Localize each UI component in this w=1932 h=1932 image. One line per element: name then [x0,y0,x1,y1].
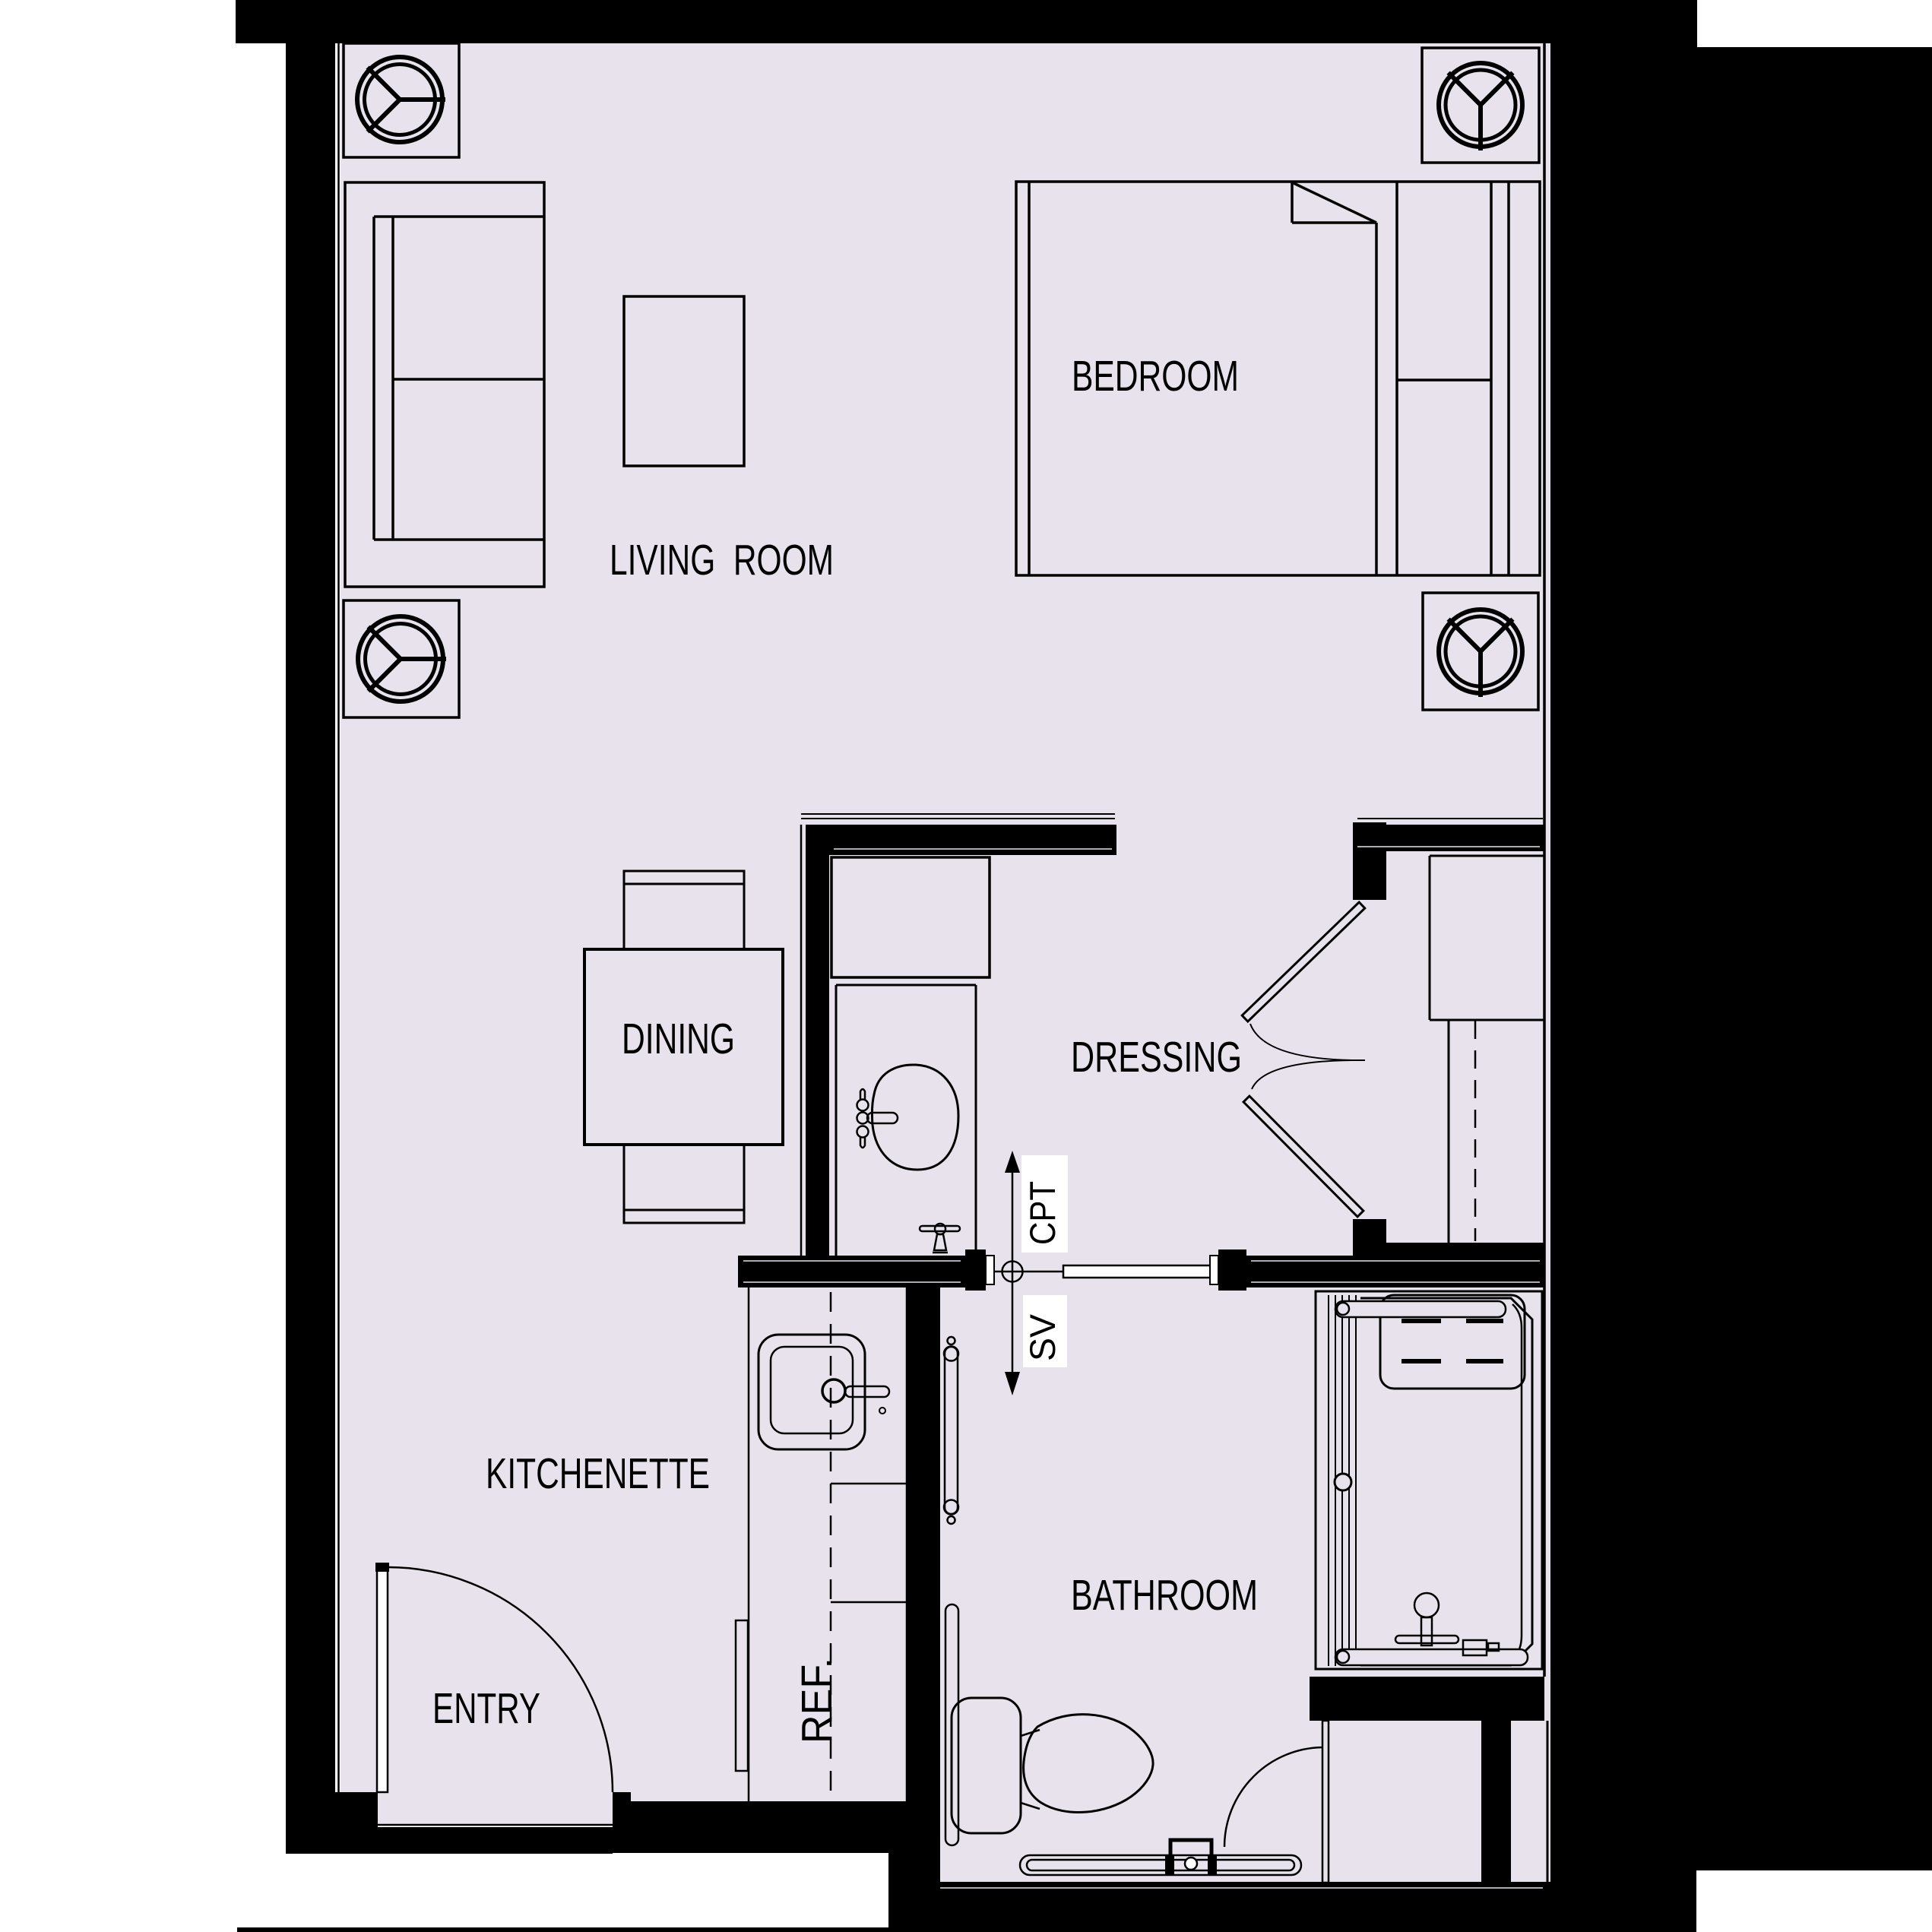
svg-text:DRESSING: DRESSING [1071,1033,1242,1082]
svg-text:DINING: DINING [622,1015,735,1063]
svg-text:BEDROOM: BEDROOM [1072,352,1239,401]
svg-text:LIVING ROOM: LIVING ROOM [610,536,834,584]
svg-text:KITCHENETTE: KITCHENETTE [486,1449,710,1498]
svg-text:REF.: REF. [793,1658,841,1744]
svg-text:BATHROOM: BATHROOM [1071,1571,1258,1620]
svg-text:CPT: CPT [1022,1181,1063,1245]
svg-text:ENTRY: ENTRY [432,1684,540,1733]
svg-text:SV: SV [1022,1313,1063,1361]
